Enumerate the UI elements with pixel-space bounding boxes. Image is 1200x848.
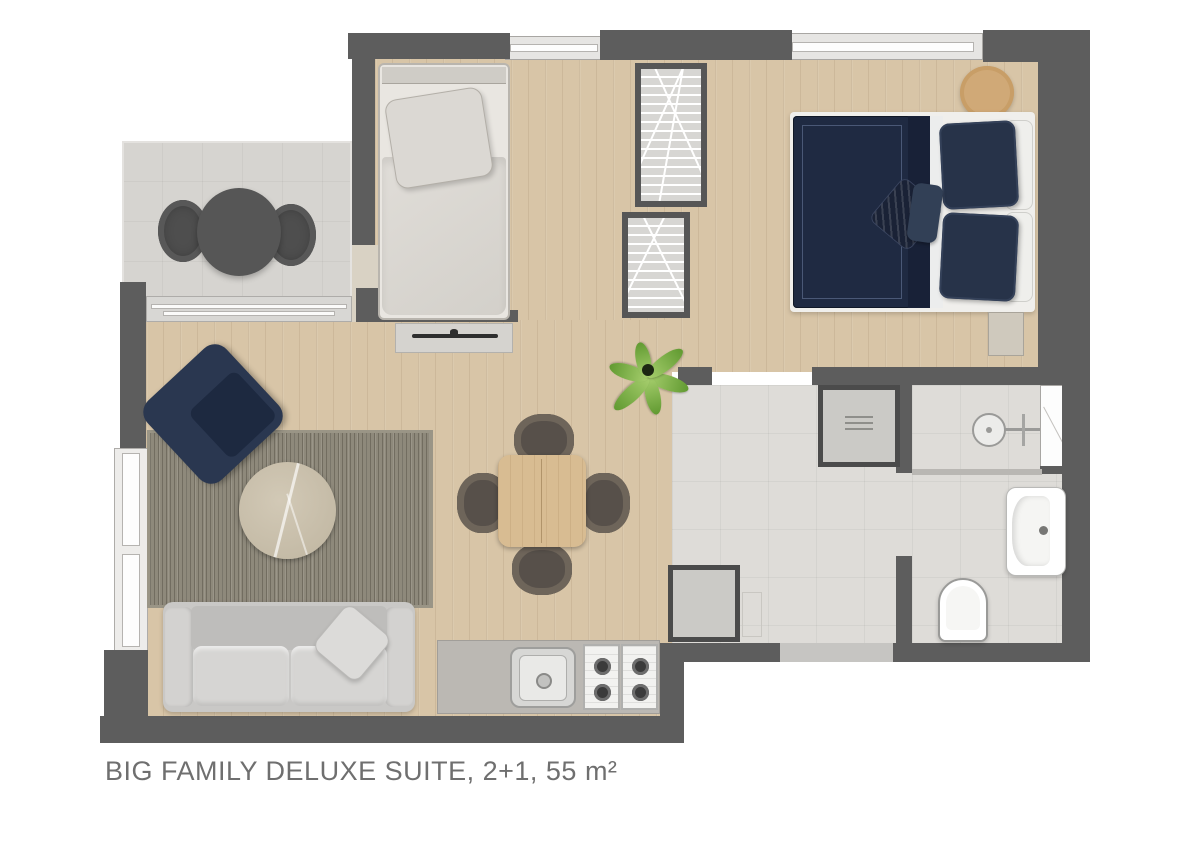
marble-vein <box>272 462 302 559</box>
wardrobe-upper <box>635 63 707 207</box>
burner-icon <box>594 658 611 675</box>
armchair-seat <box>188 369 278 459</box>
coffee-table <box>239 462 336 559</box>
wall-right-bathroom <box>1062 372 1090 662</box>
floor-plan-canvas: BIG FAMILY DELUXE SUITE, 2+1, 55 m² <box>0 0 1200 848</box>
balcony-round-table <box>197 188 281 276</box>
window-pane <box>122 554 140 647</box>
wall-bathroom-partition-lower <box>896 556 912 643</box>
burner-icon <box>632 658 649 675</box>
shower-arm-tee <box>1022 414 1025 446</box>
double-bed <box>790 112 1035 312</box>
stove-module-right <box>621 644 658 710</box>
entrance-threshold <box>780 643 893 662</box>
bed-pillow <box>384 86 495 190</box>
faucet-icon <box>1039 526 1048 535</box>
sofa <box>163 602 415 712</box>
wall-single-bedroom-left <box>352 33 375 245</box>
tv-unit <box>395 323 513 353</box>
sofa-seat-cushion <box>193 646 289 706</box>
wardrobe-hatch <box>622 214 666 318</box>
wardrobe-hatch <box>642 214 690 318</box>
sofa-armrest-left <box>165 607 193 707</box>
window-living-room <box>114 448 148 652</box>
bathroom-sink <box>1006 487 1066 576</box>
dining-table <box>498 455 586 547</box>
window-pane <box>122 453 140 546</box>
burner-icon <box>632 684 649 701</box>
plant-center <box>642 364 654 376</box>
page-title: BIG FAMILY DELUXE SUITE, 2+1, 55 m² <box>105 756 617 787</box>
bed-headboard <box>382 67 506 84</box>
window-double-bedroom <box>783 33 983 60</box>
bed-pillow-navy <box>939 212 1019 302</box>
wardrobe-lower <box>622 212 690 318</box>
tv-icon <box>412 334 498 338</box>
shower-divider <box>912 469 1042 475</box>
marble-vein <box>286 493 310 559</box>
cabinet-vent-lines <box>823 390 895 430</box>
plant <box>598 326 698 414</box>
window-pane <box>510 44 598 53</box>
stove-module-left <box>583 644 620 710</box>
wardrobe-hatch <box>654 63 685 207</box>
door-rail <box>151 304 347 309</box>
dining-chair-south <box>512 543 572 595</box>
shower-arm <box>1002 428 1040 431</box>
wall-left-bottom-corner <box>104 650 148 720</box>
wall-bottom <box>100 716 684 743</box>
wall-bathroom-bottom <box>893 643 1090 662</box>
storage-cabinet-top <box>818 385 900 467</box>
storage-cabinet-bottom <box>668 565 740 642</box>
toilet-seat <box>946 586 980 630</box>
single-bed <box>378 63 510 320</box>
balcony-sliding-door <box>146 296 352 322</box>
armchair <box>145 350 285 482</box>
window-glass-line <box>1043 407 1063 443</box>
faucet-icon <box>536 673 552 689</box>
sofa-armrest-right <box>385 607 413 707</box>
table-seam <box>541 459 542 543</box>
toilet <box>938 578 988 642</box>
door-swing-outline <box>742 592 762 637</box>
window-single-bedroom <box>505 36 603 60</box>
shower-head-center <box>986 427 992 433</box>
wall-right-bedroom <box>1038 30 1090 372</box>
shower-head-icon <box>972 413 1006 447</box>
wall-below-bathroom-window <box>1040 466 1064 474</box>
bed-pillow-navy <box>939 120 1019 210</box>
nightstand <box>988 312 1024 356</box>
kitchen-sink <box>510 647 576 708</box>
door-rail <box>163 311 334 316</box>
window-pane <box>792 42 974 52</box>
wall-top-middle <box>600 30 792 60</box>
wall-left <box>120 282 146 448</box>
bathroom-window <box>1040 385 1064 467</box>
wall-corridor-bottom <box>678 643 780 662</box>
wall-bedroom-corridor <box>812 367 1062 385</box>
burner-icon <box>594 684 611 701</box>
tv-stand-icon <box>450 329 458 334</box>
